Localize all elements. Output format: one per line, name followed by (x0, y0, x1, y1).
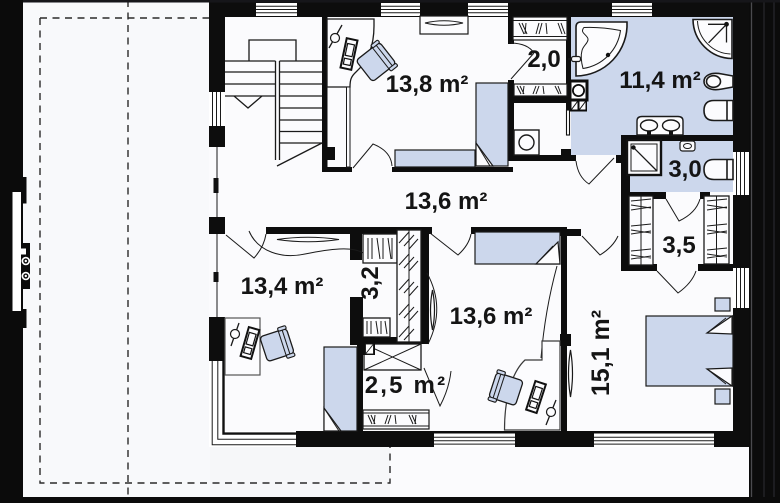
svg-text:11,4 m²: 11,4 m² (619, 67, 700, 94)
svg-text:13,6 m²: 13,6 m² (405, 188, 488, 215)
svg-text:13,6 m²: 13,6 m² (450, 303, 533, 330)
svg-text:13,4 m²: 13,4 m² (241, 273, 324, 300)
svg-text:15,1 m²: 15,1 m² (587, 310, 615, 396)
svg-text:3,0: 3,0 (668, 156, 701, 183)
svg-text:3,2: 3,2 (357, 266, 384, 299)
svg-text:13,8 m²: 13,8 m² (386, 71, 469, 98)
svg-text:3,5: 3,5 (662, 232, 695, 259)
